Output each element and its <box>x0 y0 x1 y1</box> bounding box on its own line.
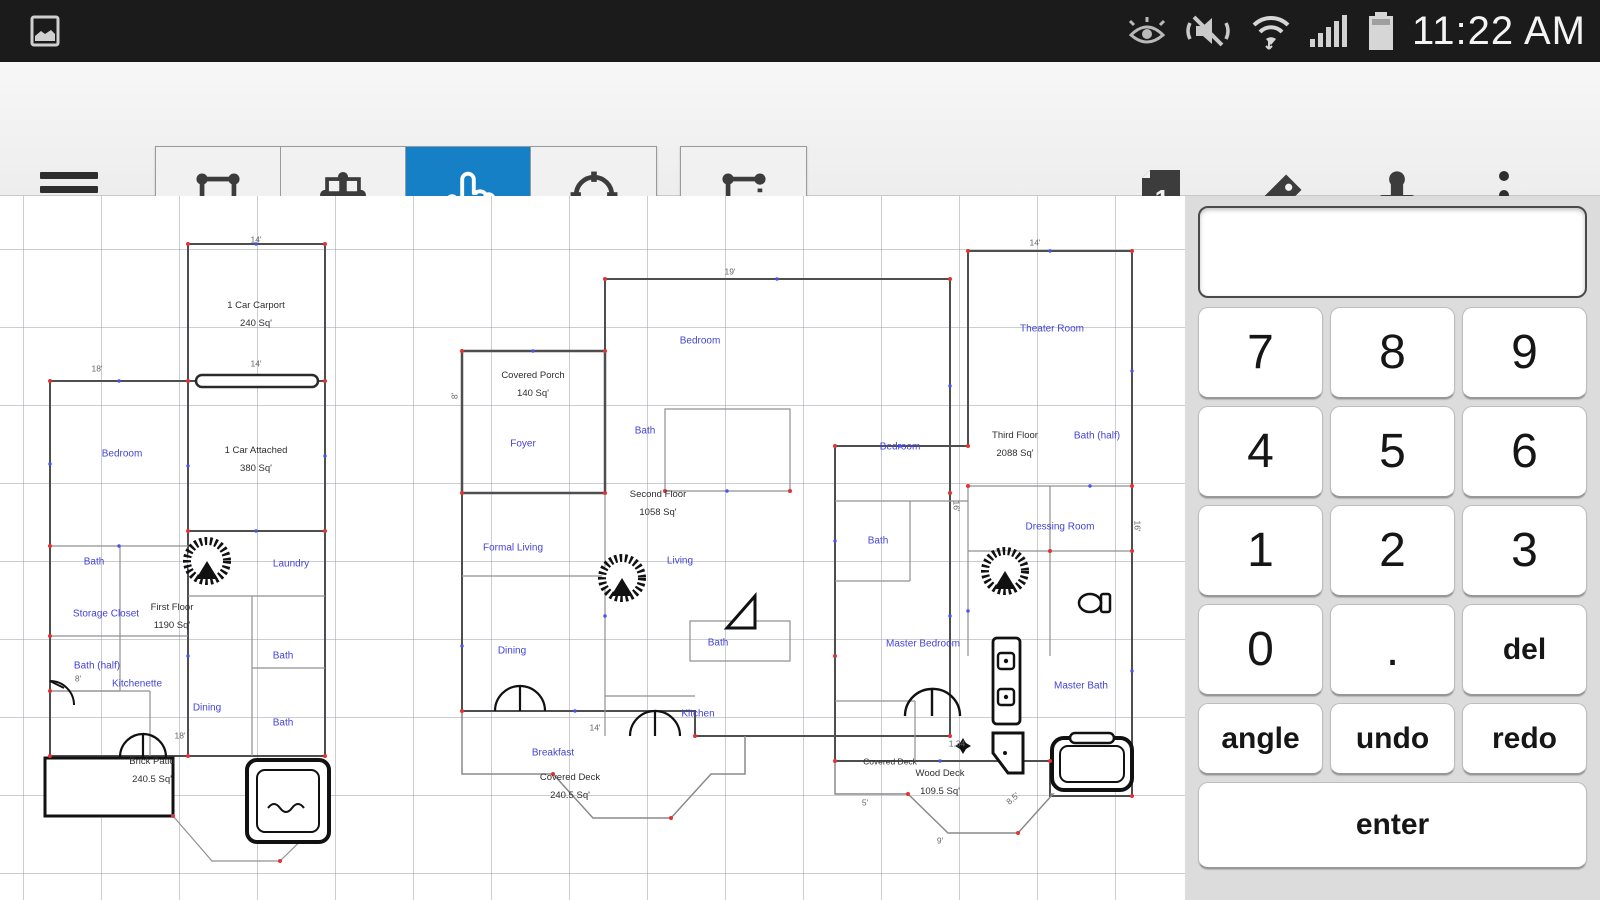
dim-label: 8' <box>75 674 81 683</box>
room-label: Bath (half) <box>1074 431 1120 442</box>
wifi-icon <box>1248 11 1294 51</box>
area-label: 1058 Sq' <box>639 508 676 518</box>
measurement-input-display[interactable] <box>1198 206 1587 298</box>
room-label: Breakfast <box>532 748 574 759</box>
key-8[interactable]: 8 <box>1330 307 1455 399</box>
dim-label: 18' <box>174 731 185 740</box>
area-label: 240.5 Sq' <box>132 775 172 785</box>
room-label: Bath <box>84 557 105 568</box>
room-label: Bath <box>868 536 889 547</box>
room-label: Bedroom <box>102 449 143 460</box>
area-label: 140 Sq' <box>517 389 549 399</box>
key-2[interactable]: 2 <box>1330 505 1455 597</box>
key-5[interactable]: 5 <box>1330 406 1455 498</box>
area-label: Covered Deck <box>863 757 917 766</box>
area-label: 1 Car Carport <box>227 301 285 311</box>
room-label: Bedroom <box>880 442 921 453</box>
dim-label: 16' <box>1132 520 1141 531</box>
room-label: Bedroom <box>680 336 721 347</box>
room-label: Master Bath <box>1054 681 1108 692</box>
dim-label: 14' <box>1029 238 1040 247</box>
key-angle[interactable]: angle <box>1198 703 1323 775</box>
area-label: Wood Deck <box>916 769 965 779</box>
floor-plan-third-floor[interactable]: 14' Theater Room Bedroom Third Floor 208… <box>820 241 1140 881</box>
dim-label: 18' <box>91 364 102 373</box>
key-6[interactable]: 6 <box>1462 406 1587 498</box>
room-label: Bath (half) <box>74 661 120 672</box>
room-label: Foyer <box>510 439 536 450</box>
room-label: Living <box>667 556 693 567</box>
key-1[interactable]: 1 <box>1198 505 1323 597</box>
room-label: Bath <box>273 718 294 729</box>
room-label: Kitchen <box>681 709 714 720</box>
key-enter[interactable]: enter <box>1198 782 1587 869</box>
area-label: Covered Deck <box>540 773 600 783</box>
area-label: Covered Porch <box>501 371 564 381</box>
mute-vibrate-icon <box>1182 11 1234 51</box>
app-toolbar: 1 <box>0 62 1600 196</box>
room-label: Theater Room <box>1020 324 1084 335</box>
clock: 11:22 AM <box>1412 9 1586 54</box>
room-label: Dressing Room <box>1026 522 1095 533</box>
key-delete[interactable]: del <box>1462 604 1587 696</box>
area-label: 240.5 Sq' <box>550 791 590 801</box>
room-label: Bath <box>273 651 294 662</box>
battery-icon <box>1366 10 1396 52</box>
key-0[interactable]: 0 <box>1198 604 1323 696</box>
floor-plan-canvas[interactable]: 14' 1 Car Carport 240 Sq' 18' 14' Bedroo… <box>0 196 1185 900</box>
dim-label: 14' <box>589 723 600 732</box>
dim-label: 19' <box>724 267 735 276</box>
key-3[interactable]: 3 <box>1462 505 1587 597</box>
dim-label: 14' <box>250 235 261 244</box>
room-label: Kitchenette <box>112 679 162 690</box>
room-label: Bath <box>708 638 729 649</box>
dim-label: 5' <box>862 798 868 807</box>
room-label: Dining <box>193 703 221 714</box>
status-bar: 11:22 AM <box>0 0 1600 62</box>
signal-strength-icon <box>1308 11 1352 51</box>
dim-label: 9' <box>937 836 943 845</box>
area-label: 240 Sq' <box>240 319 272 329</box>
area-label: 1190 Sq' <box>154 621 191 631</box>
key-decimal[interactable]: . <box>1330 604 1455 696</box>
screenshot-notification-icon <box>28 14 62 48</box>
room-label: Laundry <box>273 559 309 570</box>
area-label: 2088 Sq' <box>996 449 1033 459</box>
room-label: Storage Closet <box>73 609 139 620</box>
numeric-keypad-panel: 7 8 9 4 5 6 1 2 3 0 . del angle undo red… <box>1185 196 1600 900</box>
area-label: 1 Car Attached <box>225 446 288 456</box>
dim-label: 14' <box>250 359 261 368</box>
key-7[interactable]: 7 <box>1198 307 1323 399</box>
dim-label: 8' <box>450 393 459 399</box>
area-label: Brick Patio <box>129 757 174 767</box>
key-4[interactable]: 4 <box>1198 406 1323 498</box>
area-label: 109.5 Sq' <box>920 787 960 797</box>
room-label: Bath <box>635 426 656 437</box>
key-redo[interactable]: redo <box>1462 703 1587 775</box>
key-9[interactable]: 9 <box>1462 307 1587 399</box>
area-label: Third Floor <box>992 431 1038 441</box>
dim-label: 1.34 <box>949 739 966 748</box>
smart-stay-eye-icon <box>1126 13 1168 49</box>
room-label: Master Bedroom <box>886 639 960 650</box>
room-label: Formal Living <box>483 543 543 554</box>
room-label: Dining <box>498 646 526 657</box>
area-label: 380 Sq' <box>240 464 272 474</box>
area-label: First Floor <box>151 603 194 613</box>
area-label: Second Floor <box>630 490 687 500</box>
floor-plan-first-floor[interactable]: 14' 1 Car Carport 240 Sq' 18' 14' Bedroo… <box>40 236 340 866</box>
key-undo[interactable]: undo <box>1330 703 1455 775</box>
